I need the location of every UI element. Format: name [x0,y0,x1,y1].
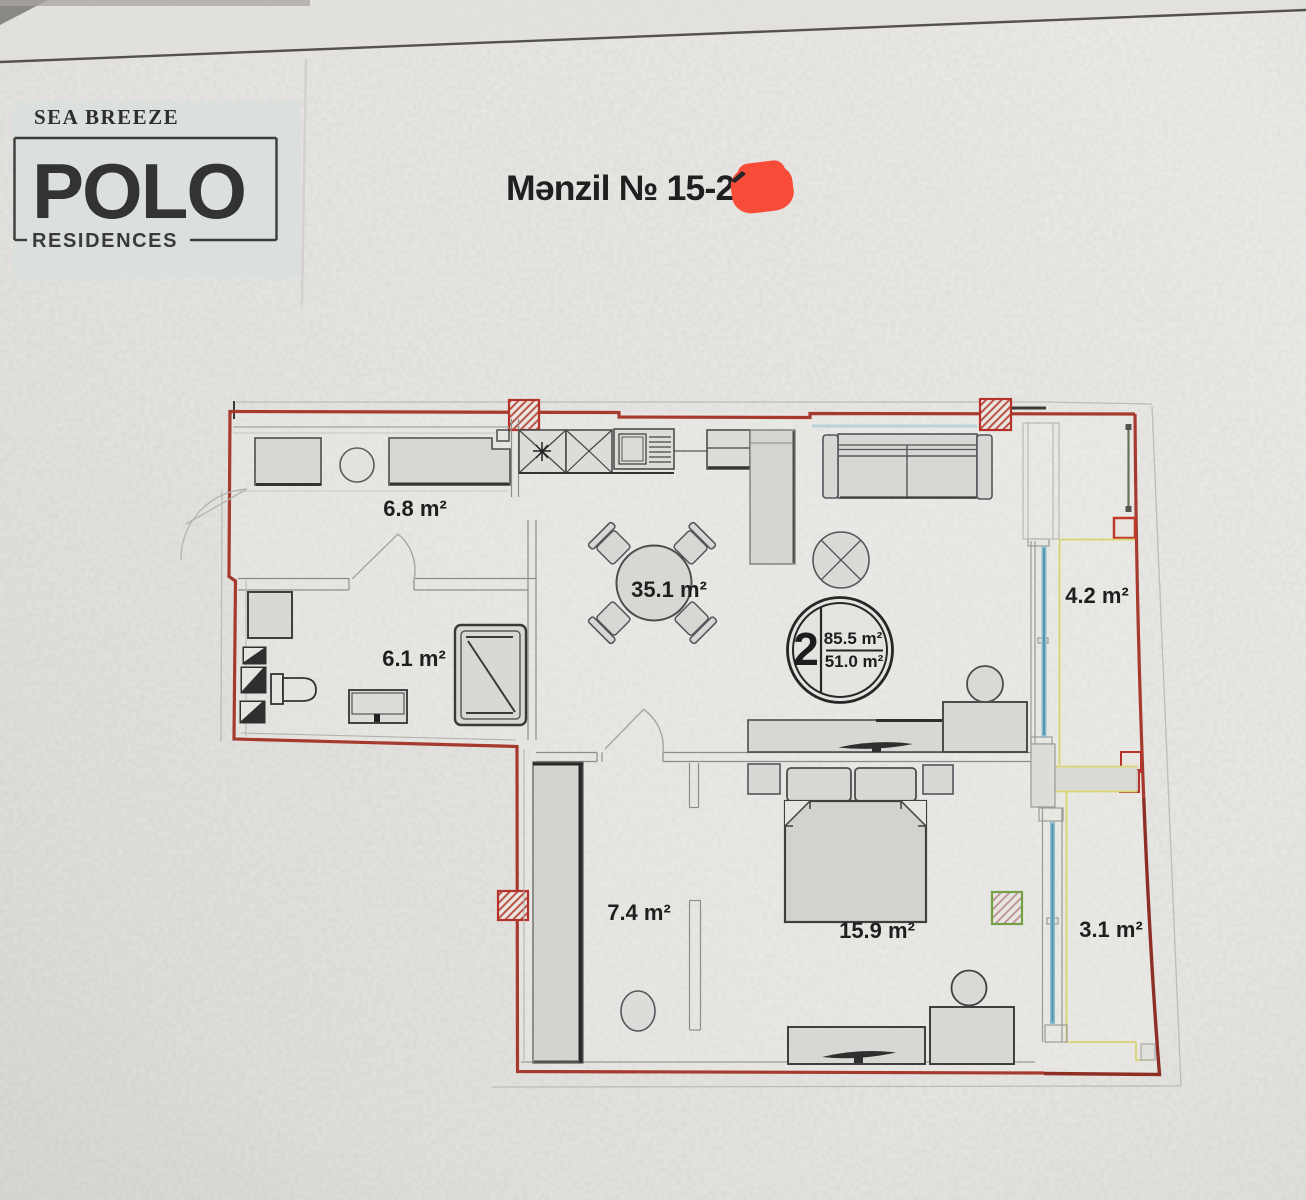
svg-text:4.2 m²: 4.2 m² [1065,583,1129,608]
svg-text:7.4 m²: 7.4 m² [607,900,671,925]
svg-text:35.1 m²: 35.1 m² [631,577,707,602]
svg-text:Mənzil № 15-21: Mənzil № 15-21 [506,168,753,208]
svg-text:2: 2 [793,623,819,675]
svg-text:15.9 m²: 15.9 m² [839,918,915,943]
svg-text:6.1 m²: 6.1 m² [382,646,446,671]
svg-text:3.1 m²: 3.1 m² [1079,917,1143,942]
svg-text:POLO: POLO [32,147,245,235]
svg-text:6.8 m²: 6.8 m² [383,496,447,521]
svg-text:85.5 m²: 85.5 m² [824,629,883,648]
svg-text:51.0 m²: 51.0 m² [825,652,884,671]
svg-text:SEA BREEZE: SEA BREEZE [34,105,179,129]
svg-text:RESIDENCES: RESIDENCES [32,230,178,252]
